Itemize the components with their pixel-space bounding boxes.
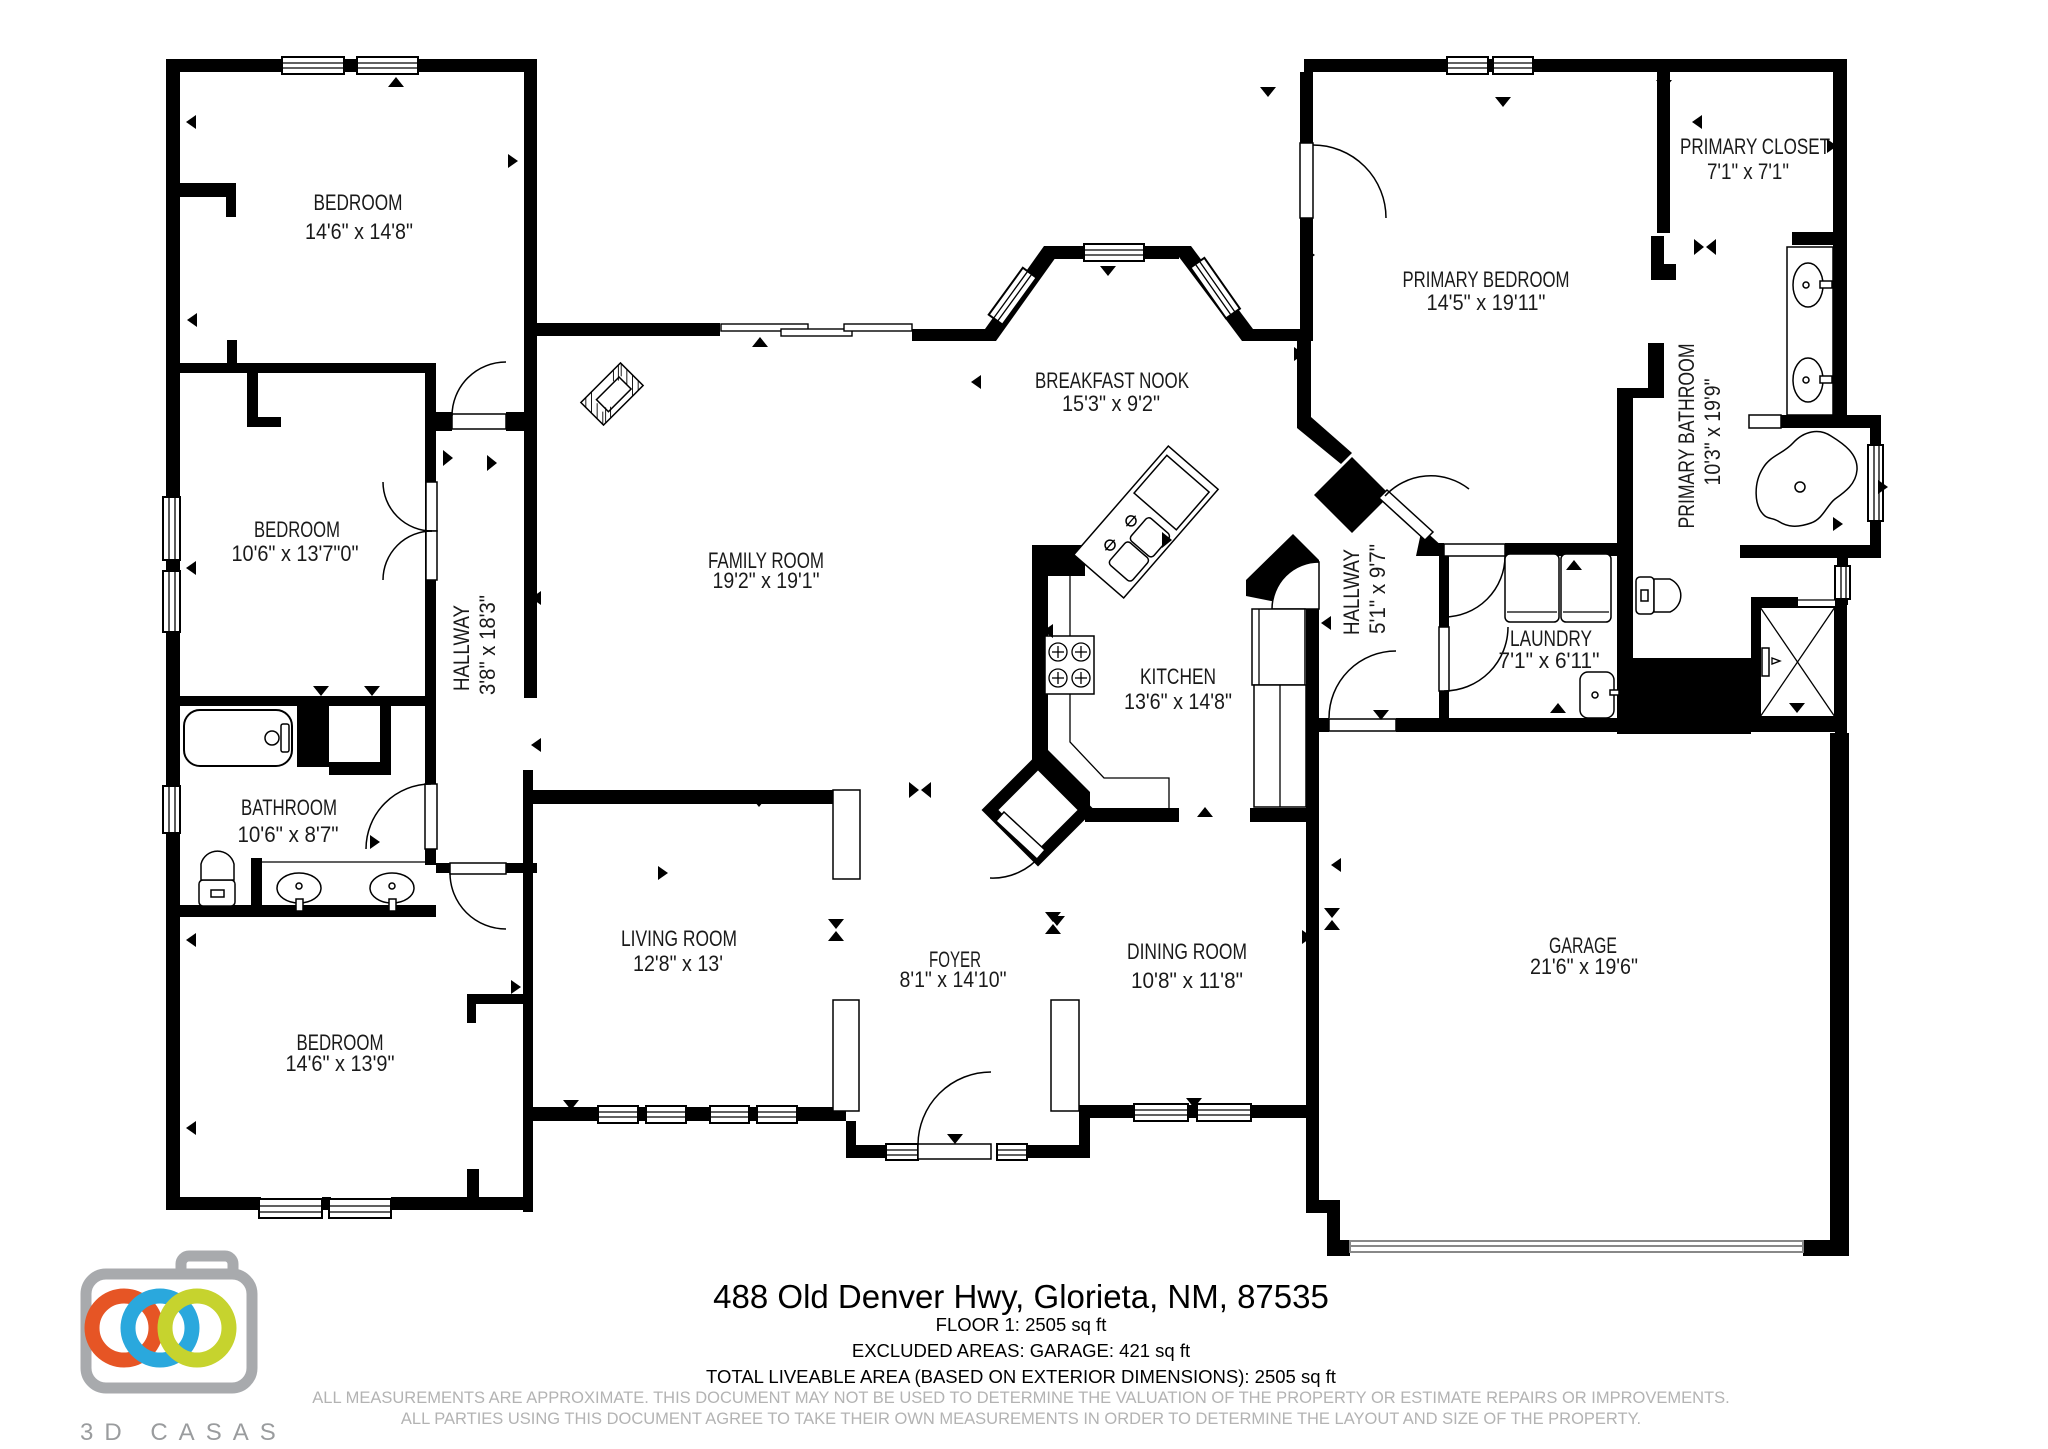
svg-text:PRIMARY BEDROOM: PRIMARY BEDROOM bbox=[1403, 267, 1570, 292]
svg-text:12'8" x 13': 12'8" x 13' bbox=[633, 951, 723, 976]
svg-text:10'6" x 8'7": 10'6" x 8'7" bbox=[238, 822, 339, 847]
svg-text:14'6" x 13'9": 14'6" x 13'9" bbox=[286, 1051, 395, 1076]
svg-text:10'6" x 13'7"0": 10'6" x 13'7"0" bbox=[232, 541, 359, 566]
svg-text:ALL PARTIES USING THIS DOCUMEN: ALL PARTIES USING THIS DOCUMENT AGREE TO… bbox=[401, 1410, 1641, 1428]
svg-text:488 Old Denver Hwy, Glorieta,: 488 Old Denver Hwy, Glorieta, NM, 87535 bbox=[713, 1278, 1329, 1315]
svg-text:HALLWAY: HALLWAY bbox=[1339, 549, 1364, 635]
svg-text:DINING ROOM: DINING ROOM bbox=[1127, 939, 1247, 964]
svg-text:15'3" x 9'2": 15'3" x 9'2" bbox=[1062, 391, 1160, 416]
svg-text:BATHROOM: BATHROOM bbox=[241, 795, 337, 820]
svg-text:BEDROOM: BEDROOM bbox=[254, 517, 340, 542]
svg-text:KITCHEN: KITCHEN bbox=[1140, 664, 1216, 689]
svg-text:14'6" x 14'8": 14'6" x 14'8" bbox=[305, 219, 413, 244]
svg-text:ALL MEASUREMENTS ARE APPROXIMA: ALL MEASUREMENTS ARE APPROXIMATE. THIS D… bbox=[312, 1389, 1729, 1407]
svg-text:FLOOR 1: 2505 sq ft: FLOOR 1: 2505 sq ft bbox=[936, 1314, 1107, 1335]
svg-text:BREAKFAST NOOK: BREAKFAST NOOK bbox=[1035, 368, 1189, 393]
svg-text:7'1" x 6'11": 7'1" x 6'11" bbox=[1499, 648, 1600, 673]
svg-text:8'1" x 14'10": 8'1" x 14'10" bbox=[900, 967, 1007, 992]
svg-text:BEDROOM: BEDROOM bbox=[314, 190, 403, 215]
svg-text:7'1" x 7'1": 7'1" x 7'1" bbox=[1707, 159, 1789, 184]
svg-text:PRIMARY CLOSET: PRIMARY CLOSET bbox=[1680, 134, 1830, 159]
svg-text:10'8" x 11'8": 10'8" x 11'8" bbox=[1131, 968, 1243, 993]
svg-text:TOTAL LIVEABLE AREA (BASED ON: TOTAL LIVEABLE AREA (BASED ON EXTERIOR D… bbox=[706, 1366, 1336, 1387]
svg-text:5'1" x 9'7": 5'1" x 9'7" bbox=[1365, 544, 1390, 634]
svg-text:10'3" x 19'9": 10'3" x 19'9" bbox=[1700, 379, 1725, 486]
svg-text:EXCLUDED AREAS: GARAGE: 421 sq: EXCLUDED AREAS: GARAGE: 421 sq ft bbox=[852, 1340, 1190, 1361]
svg-text:19'2" x 19'1": 19'2" x 19'1" bbox=[713, 568, 820, 593]
svg-text:3'8" x 18'3": 3'8" x 18'3" bbox=[475, 595, 500, 695]
svg-text:21'6" x 19'6": 21'6" x 19'6" bbox=[1530, 954, 1638, 979]
svg-text:3D CASAS: 3D CASAS bbox=[80, 1419, 287, 1446]
svg-text:HALLWAY: HALLWAY bbox=[449, 605, 474, 691]
svg-text:PRIMARY BATHROOM: PRIMARY BATHROOM bbox=[1674, 344, 1699, 529]
svg-text:LIVING ROOM: LIVING ROOM bbox=[621, 926, 737, 951]
svg-text:14'5" x 19'11": 14'5" x 19'11" bbox=[1427, 290, 1546, 315]
svg-text:13'6" x 14'8": 13'6" x 14'8" bbox=[1124, 689, 1232, 714]
